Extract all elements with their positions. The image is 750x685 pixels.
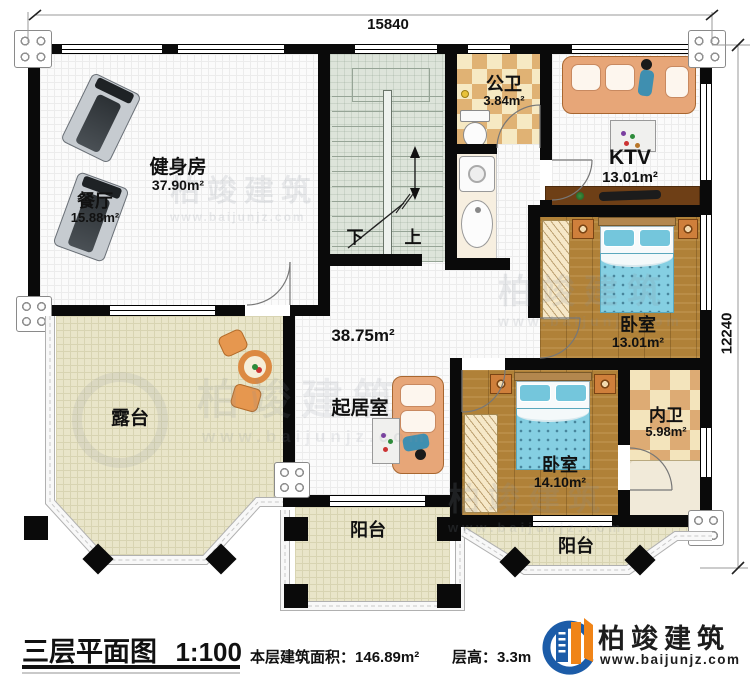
room-label-ktv: KTV 13.01m² xyxy=(570,146,690,186)
room-label-public-bath: 公卫 3.84m² xyxy=(458,74,550,109)
plan-title-row: 三层平面图 1:100 xyxy=(22,630,242,669)
room-label-balcony-right: 阳台 xyxy=(538,536,614,556)
floor-height-label: 层高： xyxy=(452,649,497,666)
watermark-url: www.baijunjz.com xyxy=(202,427,429,447)
room-label-living: 起居室 xyxy=(298,398,422,419)
title-underline-shadow xyxy=(22,672,240,674)
room-area: 13.01m² xyxy=(570,170,690,187)
watermark-name: 柏竣建筑 xyxy=(498,264,683,313)
brand-logo-icon xyxy=(542,612,596,680)
room-area: 5.98m² xyxy=(628,425,704,440)
room-label-ensuite: 内卫 5.98m² xyxy=(628,406,704,440)
title-underline xyxy=(22,665,240,669)
room-area: 15.88m² xyxy=(45,211,145,226)
room-label-dining: 餐厅 15.88m² xyxy=(45,191,145,226)
brand-url: www.baijunjz.com xyxy=(600,652,741,667)
floor-area-row: 本层建筑面积：146.89m² xyxy=(250,646,419,667)
floor-height-row: 层高：3.3m xyxy=(452,646,531,667)
room-area: 13.01m² xyxy=(583,335,693,351)
room-label-bedroom2: 卧室 14.10m² xyxy=(505,455,615,491)
room-name: 健身房 xyxy=(118,157,238,178)
living-area-label: 38.75m² xyxy=(308,326,418,345)
room-area: 14.10m² xyxy=(505,475,615,491)
floor-height-value: 3.3m xyxy=(497,649,531,666)
dim-top-label: 15840 xyxy=(348,17,428,34)
plan-title: 三层平面图 xyxy=(22,637,157,667)
room-label-bedroom1: 卧室 13.01m² xyxy=(583,315,693,351)
stair-down-label: 下 xyxy=(342,228,368,247)
room-name: 卧室 xyxy=(583,315,693,335)
room-name: 卧室 xyxy=(505,455,615,475)
plan-scale: 1:100 xyxy=(175,637,242,667)
dim-right-label: 12240 xyxy=(720,303,737,363)
room-name: 餐厅 xyxy=(45,191,145,211)
watermark-url: www.baijunjz.com xyxy=(448,520,624,535)
room-name: 内卫 xyxy=(628,406,704,425)
room-name: KTV xyxy=(570,146,690,170)
brand-name: 柏竣建筑 xyxy=(598,617,730,656)
floor-area-label: 本层建筑面积： xyxy=(250,649,355,666)
floor-plan: 柏竣建筑 www.baijunjz.com 柏竣建筑 www.baijunjz.… xyxy=(0,0,750,685)
watermark-url: www.baijunjz.com xyxy=(170,210,318,224)
room-label-terrace: 露台 xyxy=(90,408,170,429)
room-label-balcony-center: 阳台 xyxy=(330,520,406,540)
room-name: 公卫 xyxy=(458,74,550,94)
room-label-gym: 健身房 37.90m² xyxy=(118,157,238,194)
room-area: 3.84m² xyxy=(458,94,550,109)
stair-up-label: 上 xyxy=(400,228,426,247)
floor-area-value: 146.89m² xyxy=(355,649,419,666)
